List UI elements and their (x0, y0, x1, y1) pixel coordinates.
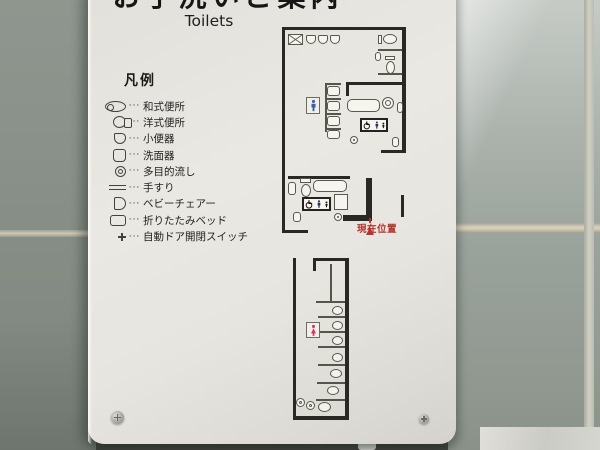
toilet-guide-sign-panel: お手洗いご案内 Toilets 凡例 ··· 和式便所 ··· 洋式便所 ···… (88, 0, 456, 444)
person-icon (316, 199, 322, 209)
tile-grout-line (584, 0, 594, 450)
toilet-icon (327, 116, 340, 126)
baby-chair-icon (114, 197, 126, 210)
legend-dots: ··· (126, 199, 143, 209)
sign-subtitle-english: Toilets (149, 12, 269, 30)
stall-partition (318, 316, 345, 318)
stall-partition (316, 399, 345, 401)
current-location-label: 現在位置 (357, 221, 397, 235)
legend-item: ··· 洋式便所 (100, 114, 280, 130)
multipurpose-sink-icon (350, 136, 358, 144)
toilet-icon (330, 369, 342, 378)
wall (402, 27, 406, 153)
stall-partition (325, 113, 341, 115)
wheelchair-icon (304, 199, 314, 209)
toilet-icon (383, 34, 397, 44)
tile-grout-line (450, 223, 600, 233)
wall (293, 416, 349, 420)
wall (345, 261, 349, 420)
toilet-icon (327, 130, 340, 139)
tile-grout-line (0, 230, 100, 237)
wall (282, 27, 285, 233)
toilet-tank-icon (300, 178, 311, 183)
bench-icon (347, 99, 380, 112)
toilet-icon (327, 101, 340, 111)
wall (381, 150, 406, 153)
legend-dots: ··· (126, 101, 143, 111)
wall (282, 230, 308, 233)
accessible-toilet-sign (360, 118, 388, 132)
wall (293, 258, 296, 420)
womens-room-sign (306, 322, 320, 338)
washbasin-icon (397, 102, 403, 113)
wall (313, 258, 316, 271)
western-toilet-icon (113, 116, 126, 128)
washbasin-icon (375, 52, 381, 61)
washbasin-icon (392, 137, 399, 147)
legend-dots: ··· (126, 134, 143, 144)
legend-item-label: 多目的流し (143, 164, 196, 179)
legend-item: ··· 小便器 (100, 131, 280, 147)
sign-title: お手洗いご案内 (78, 0, 378, 12)
wall (288, 176, 350, 179)
legend-item: ··· 洗面器 (100, 147, 280, 163)
urinal-icon (306, 35, 316, 44)
stall-partition (318, 364, 345, 366)
woman-icon (309, 324, 318, 337)
toilet-icon (332, 353, 343, 362)
toilet-tank-icon (385, 56, 395, 60)
toilet-icon (327, 86, 340, 96)
legend-heading: 凡例 (124, 70, 280, 90)
toilet-icon (327, 386, 339, 395)
screw (111, 411, 124, 424)
stall-partition (378, 49, 402, 51)
legend-item-label: 小便器 (143, 131, 175, 146)
legend-item: ··· 和式便所 (100, 98, 280, 114)
multipurpose-sink-icon (288, 34, 303, 45)
wall-tiles-left (0, 0, 100, 450)
person-icon (374, 120, 380, 130)
washbasin-icon (296, 398, 305, 407)
squat-toilet-icon (105, 101, 126, 112)
legend-item: ··· 自動ドア開閉スイッチ (100, 228, 280, 244)
legend-item: ··· 折りたたみベッド (100, 212, 280, 228)
round-basin-icon (382, 97, 394, 109)
washbasin-icon (306, 401, 315, 410)
legend-item-label: 自動ドア開閉スイッチ (143, 229, 248, 244)
wall-tiles-right (450, 0, 600, 450)
legend-item: ··· 手すり (100, 179, 280, 195)
mens-room-sign (306, 97, 320, 114)
washbasin-icon (293, 212, 301, 222)
legend-item-label: ベビーチェアー (143, 196, 216, 211)
stall-partition (330, 264, 332, 302)
baby-icon (324, 200, 329, 209)
wheelchair-icon (362, 120, 372, 130)
toilet-icon (318, 402, 331, 412)
legend-item: ··· ベビーチェアー (100, 196, 280, 212)
legend-dots: ··· (126, 232, 143, 242)
tile-reflection (456, 0, 576, 200)
legend-item: ··· 多目的流し (100, 163, 280, 179)
washbasin-icon (113, 149, 126, 162)
man-icon (309, 99, 318, 112)
multipurpose-sink-icon (334, 213, 342, 221)
toilet-icon (332, 321, 343, 330)
multipurpose-sink-icon (115, 166, 126, 177)
stall-partition (317, 382, 345, 384)
urinal-icon (114, 133, 126, 144)
wall (346, 82, 404, 85)
baby-icon (381, 121, 386, 130)
toilet-icon (386, 61, 395, 74)
handrail-icon (109, 185, 126, 190)
stall-partition (316, 301, 345, 303)
tile-bottom-right (480, 427, 600, 450)
folding-bed-icon (110, 215, 126, 226)
wall (366, 178, 372, 220)
toilet-tank-icon (378, 35, 382, 44)
bench-icon (313, 180, 347, 192)
stall-partition (318, 331, 345, 333)
toilet-icon (332, 306, 343, 315)
legend-item-label: 洗面器 (143, 148, 175, 163)
legend-item-label: 手すり (143, 180, 175, 195)
wall (282, 27, 406, 30)
wall (346, 82, 349, 96)
legend-dots: ··· (126, 150, 143, 160)
toilet-icon (301, 184, 311, 197)
legend-item-label: 和式便所 (143, 99, 185, 114)
legend-item-label: 折りたたみベッド (143, 213, 227, 228)
stall-partition (325, 83, 341, 85)
wall (313, 258, 349, 261)
floor-plan: 現在位置 (280, 25, 412, 427)
stall-partition (325, 98, 341, 100)
legend-dots: ··· (126, 215, 143, 225)
toilet-icon (332, 336, 343, 345)
urinal-icon (318, 35, 328, 44)
auto-door-switch-icon (118, 233, 126, 241)
legend: 凡例 ··· 和式便所 ··· 洋式便所 ··· 小便器 ··· 洗面器 ···… (100, 70, 280, 245)
legend-dots: ··· (126, 166, 143, 176)
legend-item-label: 洋式便所 (143, 115, 185, 130)
screw (419, 414, 429, 424)
washbasin-icon (288, 182, 296, 195)
urinal-icon (330, 35, 340, 44)
accessible-toilet-sign (302, 197, 331, 211)
legend-dots: ··· (126, 183, 143, 193)
wall (401, 195, 404, 217)
stall-icon (334, 194, 348, 210)
stall-partition (318, 346, 345, 348)
